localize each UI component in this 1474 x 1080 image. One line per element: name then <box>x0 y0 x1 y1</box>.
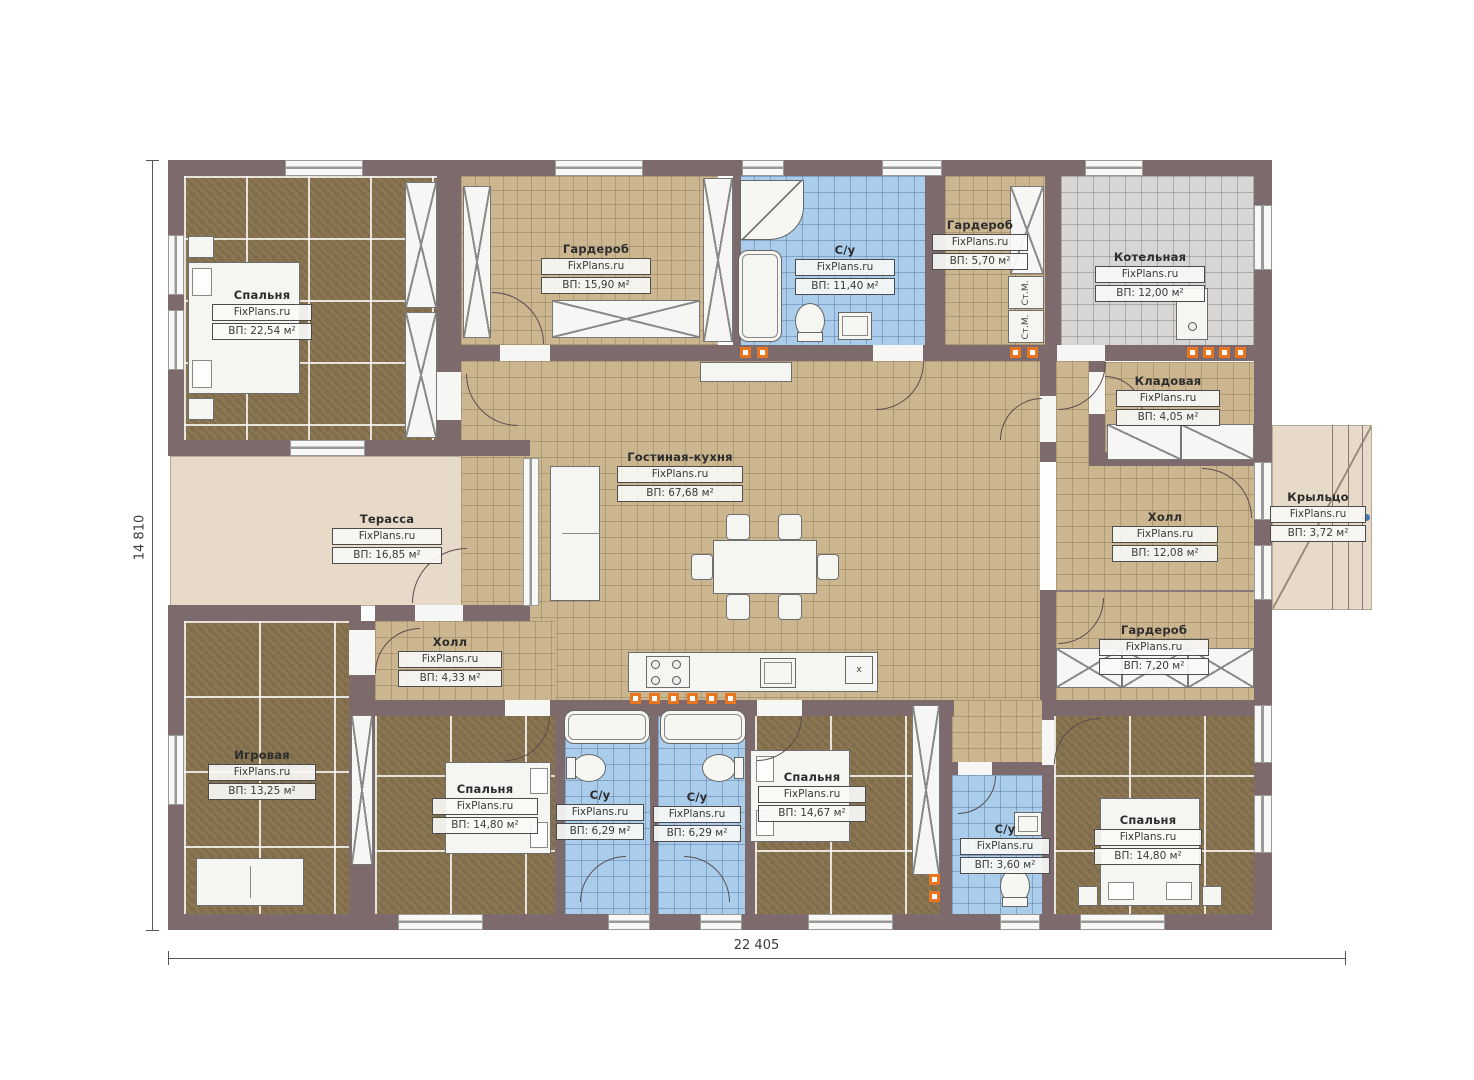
room-watermark: FixPlans.ru <box>541 258 651 275</box>
vent <box>1219 347 1230 358</box>
room-area: ВП: 15,90 м² <box>541 277 651 294</box>
room-name: Холл <box>398 635 502 649</box>
room-name: Терасса <box>332 512 442 526</box>
closet <box>405 182 437 308</box>
room-label-wardrobe-tr: Гардероб FixPlans.ru ВП: 5,70 м² <box>932 218 1028 270</box>
dimension-tick <box>146 930 159 931</box>
kitchen-sink <box>760 658 796 688</box>
dimension-line-vertical <box>152 160 153 930</box>
room-name: Гардероб <box>541 242 651 256</box>
room-name: Спальня <box>212 288 312 302</box>
storage-shelf <box>1181 424 1254 460</box>
room-watermark: FixPlans.ru <box>1099 639 1209 656</box>
window <box>882 160 942 176</box>
vent <box>649 693 660 704</box>
window <box>742 160 784 176</box>
burner <box>672 676 681 685</box>
window <box>1085 160 1143 176</box>
chair <box>691 554 713 580</box>
wall <box>184 605 361 621</box>
wall <box>168 160 184 456</box>
room-label-wardrobe-top: Гардероб FixPlans.ru ВП: 15,90 м² <box>541 242 651 294</box>
room-area: ВП: 6,29 м² <box>653 825 741 842</box>
vent <box>1235 347 1246 358</box>
room-name: Спальня <box>432 782 538 796</box>
room-label-bedroom-br: Спальня FixPlans.ru ВП: 14,80 м² <box>1094 813 1202 865</box>
room-watermark: FixPlans.ru <box>795 259 895 276</box>
washer-label: Ст.М. <box>1021 309 1031 345</box>
window <box>1254 545 1272 600</box>
room-watermark: FixPlans.ru <box>653 806 741 823</box>
sofa-seam <box>562 533 600 534</box>
dresser <box>552 300 700 338</box>
vent <box>1203 347 1214 358</box>
room-label-porch: Крыльцо FixPlans.ru ВП: 3,72 м² <box>1270 490 1366 542</box>
vent <box>757 347 768 358</box>
room-label-bathroom-b3: С/у FixPlans.ru ВП: 3,60 м² <box>960 822 1050 874</box>
room-name: Игровая <box>208 748 316 762</box>
pillow <box>192 268 212 296</box>
room-watermark: FixPlans.ru <box>332 528 442 545</box>
room-label-bathroom-b1: С/у FixPlans.ru ВП: 6,29 м² <box>556 788 644 840</box>
vent <box>929 874 940 885</box>
vent <box>929 891 940 902</box>
closet <box>463 186 491 338</box>
door-gap <box>757 700 802 716</box>
room-area: ВП: 7,20 м² <box>1099 658 1209 675</box>
chair <box>817 554 839 580</box>
room-name: С/у <box>795 243 895 257</box>
burner <box>651 676 660 685</box>
vent <box>725 693 736 704</box>
closet <box>405 312 437 438</box>
vent <box>1187 347 1198 358</box>
window <box>808 914 893 930</box>
room-label-terrace: Терасса FixPlans.ru ВП: 16,85 м² <box>332 512 442 564</box>
door-gap <box>500 345 550 361</box>
closet <box>351 715 373 865</box>
toilet <box>572 754 606 782</box>
room-area: ВП: 3,60 м² <box>960 857 1050 874</box>
room-area: ВП: 22,54 м² <box>212 323 312 340</box>
room-name: С/у <box>960 822 1050 836</box>
room-watermark: FixPlans.ru <box>1094 829 1202 846</box>
room-watermark: FixPlans.ru <box>398 651 502 668</box>
room-watermark: FixPlans.ru <box>960 838 1050 855</box>
room-label-bedroom-b2: Спальня FixPlans.ru ВП: 14,67 м² <box>758 770 866 822</box>
window <box>555 160 643 176</box>
window <box>608 914 650 930</box>
bathtub <box>660 710 746 744</box>
door-gap <box>1057 345 1105 361</box>
dimension-width-label: 22 405 <box>168 938 1345 953</box>
room-area: ВП: 14,80 м² <box>1094 848 1202 865</box>
vent <box>706 693 717 704</box>
room-name: Кладовая <box>1116 374 1220 388</box>
burner <box>651 660 660 669</box>
room-area: ВП: 12,00 м² <box>1095 285 1205 302</box>
room-area: ВП: 12,08 м² <box>1112 545 1218 562</box>
pillow <box>1166 882 1192 900</box>
terrace-sliding-door <box>523 458 539 606</box>
window <box>700 914 742 930</box>
room-name: Холл <box>1112 510 1218 524</box>
room-label-living-kitchen: Гостиная-кухня FixPlans.ru ВП: 67,68 м² <box>617 450 743 502</box>
room-watermark: FixPlans.ru <box>208 764 316 781</box>
closet <box>703 178 733 342</box>
wall <box>461 345 1254 361</box>
room-area: ВП: 5,70 м² <box>932 253 1028 270</box>
room-area: ВП: 4,33 м² <box>398 670 502 687</box>
room-watermark: FixPlans.ru <box>932 234 1028 251</box>
room-area: ВП: 16,85 м² <box>332 547 442 564</box>
door-gap <box>958 762 992 775</box>
chair <box>778 514 802 540</box>
room-watermark: FixPlans.ru <box>556 804 644 821</box>
door-gap <box>349 630 375 675</box>
room-name: Котельная <box>1095 250 1205 264</box>
room-watermark: FixPlans.ru <box>1116 390 1220 407</box>
room-area: ВП: 67,68 м² <box>617 485 743 502</box>
room-name: С/у <box>653 790 741 804</box>
room-label-boiler: Котельная FixPlans.ru ВП: 12,00 м² <box>1095 250 1205 302</box>
room-area: ВП: 4,05 м² <box>1116 409 1220 426</box>
burner <box>672 660 681 669</box>
window <box>1080 914 1165 930</box>
room-watermark: FixPlans.ru <box>432 798 538 815</box>
wardrobe-right-boundary-line <box>1056 590 1254 592</box>
room-watermark: FixPlans.ru <box>758 786 866 803</box>
room-label-storage: Кладовая FixPlans.ru ВП: 4,05 м² <box>1116 374 1220 426</box>
room-name: Гардероб <box>932 218 1028 232</box>
door-gap <box>437 372 461 420</box>
window <box>168 735 184 805</box>
sink <box>838 312 872 340</box>
toilet-tank <box>797 332 823 342</box>
room-label-bedroom-tl: Спальня FixPlans.ru ВП: 22,54 м² <box>212 288 312 340</box>
bathtub <box>564 710 650 744</box>
bathtub <box>738 250 782 342</box>
vent <box>668 693 679 704</box>
chair <box>726 594 750 620</box>
nightstand <box>188 236 214 258</box>
room-area: ВП: 13,25 м² <box>208 783 316 800</box>
window <box>285 160 363 176</box>
toilet-tank <box>566 757 576 779</box>
window <box>1254 205 1272 270</box>
wall <box>1040 590 1056 700</box>
door-gap <box>873 345 923 361</box>
room-area: ВП: 14,80 м² <box>432 817 538 834</box>
vent <box>740 347 751 358</box>
room-area: ВП: 3,72 м² <box>1270 525 1366 542</box>
dining-table <box>713 540 817 594</box>
window <box>1000 914 1040 930</box>
window <box>290 440 365 456</box>
door-gap <box>1040 396 1056 442</box>
dimension-tick <box>146 160 159 161</box>
room-name: Крыльцо <box>1270 490 1366 504</box>
chair <box>726 514 750 540</box>
storage-shelf <box>1107 424 1181 460</box>
pillow <box>192 360 212 388</box>
nightstand <box>188 398 214 420</box>
window <box>1254 795 1272 853</box>
boiler-dial <box>1188 322 1197 331</box>
toilet <box>702 754 736 782</box>
sofa-seam <box>250 866 251 898</box>
nightstand <box>1078 886 1098 906</box>
wall <box>1042 700 1254 716</box>
dimension-tick <box>168 951 169 965</box>
room-watermark: FixPlans.ru <box>1095 266 1205 283</box>
tv-stand <box>700 362 792 382</box>
room-label-playroom: Игровая FixPlans.ru ВП: 13,25 м² <box>208 748 316 800</box>
dimension-height-label: 14 810 <box>133 508 148 568</box>
room-area: ВП: 6,29 м² <box>556 823 644 840</box>
room-area: ВП: 11,40 м² <box>795 278 895 295</box>
room-watermark: FixPlans.ru <box>1112 526 1218 543</box>
door-gap <box>505 700 550 716</box>
nightstand <box>1202 886 1222 906</box>
wall <box>1045 176 1061 345</box>
washer-label: Ст.М. <box>1021 275 1031 311</box>
room-name: Спальня <box>758 770 866 784</box>
dimension-tick <box>1345 951 1346 965</box>
window <box>168 310 184 370</box>
room-watermark: FixPlans.ru <box>617 466 743 483</box>
room-label-hall-small: Холл FixPlans.ru ВП: 4,33 м² <box>398 635 502 687</box>
closet <box>912 705 940 875</box>
room-watermark: FixPlans.ru <box>1270 506 1366 523</box>
window <box>168 235 184 295</box>
window <box>1254 705 1272 763</box>
door-gap <box>415 605 463 621</box>
room-label-hall-right: Холл FixPlans.ru ВП: 12,08 м² <box>1112 510 1218 562</box>
door-gap <box>1042 720 1054 765</box>
room-label-bathroom-top: С/у FixPlans.ru ВП: 11,40 м² <box>795 243 895 295</box>
wall <box>940 700 952 914</box>
room-watermark: FixPlans.ru <box>212 304 312 321</box>
kitchen-marker: x <box>845 656 873 684</box>
chair <box>778 594 802 620</box>
vent <box>1027 347 1038 358</box>
room-label-bedroom-b1: Спальня FixPlans.ru ВП: 14,80 м² <box>432 782 538 834</box>
dimension-line-horizontal <box>168 958 1345 959</box>
room-area: ВП: 14,67 м² <box>758 805 866 822</box>
room-name: Спальня <box>1094 813 1202 827</box>
room-name: Гостиная-кухня <box>617 450 743 464</box>
floor-plan-canvas: Ст.М. Ст.М. x <box>0 0 1474 1080</box>
toilet-tank <box>734 757 744 779</box>
room-label-wardrobe-right: Гардероб FixPlans.ru ВП: 7,20 м² <box>1099 623 1209 675</box>
toilet-tank <box>1002 897 1028 907</box>
room-name: С/у <box>556 788 644 802</box>
room-name: Гардероб <box>1099 623 1209 637</box>
vent <box>687 693 698 704</box>
vent <box>630 693 641 704</box>
window <box>398 914 483 930</box>
pillow <box>1108 882 1134 900</box>
vent <box>1010 347 1021 358</box>
room-label-bathroom-b2: С/у FixPlans.ru ВП: 6,29 м² <box>653 790 741 842</box>
